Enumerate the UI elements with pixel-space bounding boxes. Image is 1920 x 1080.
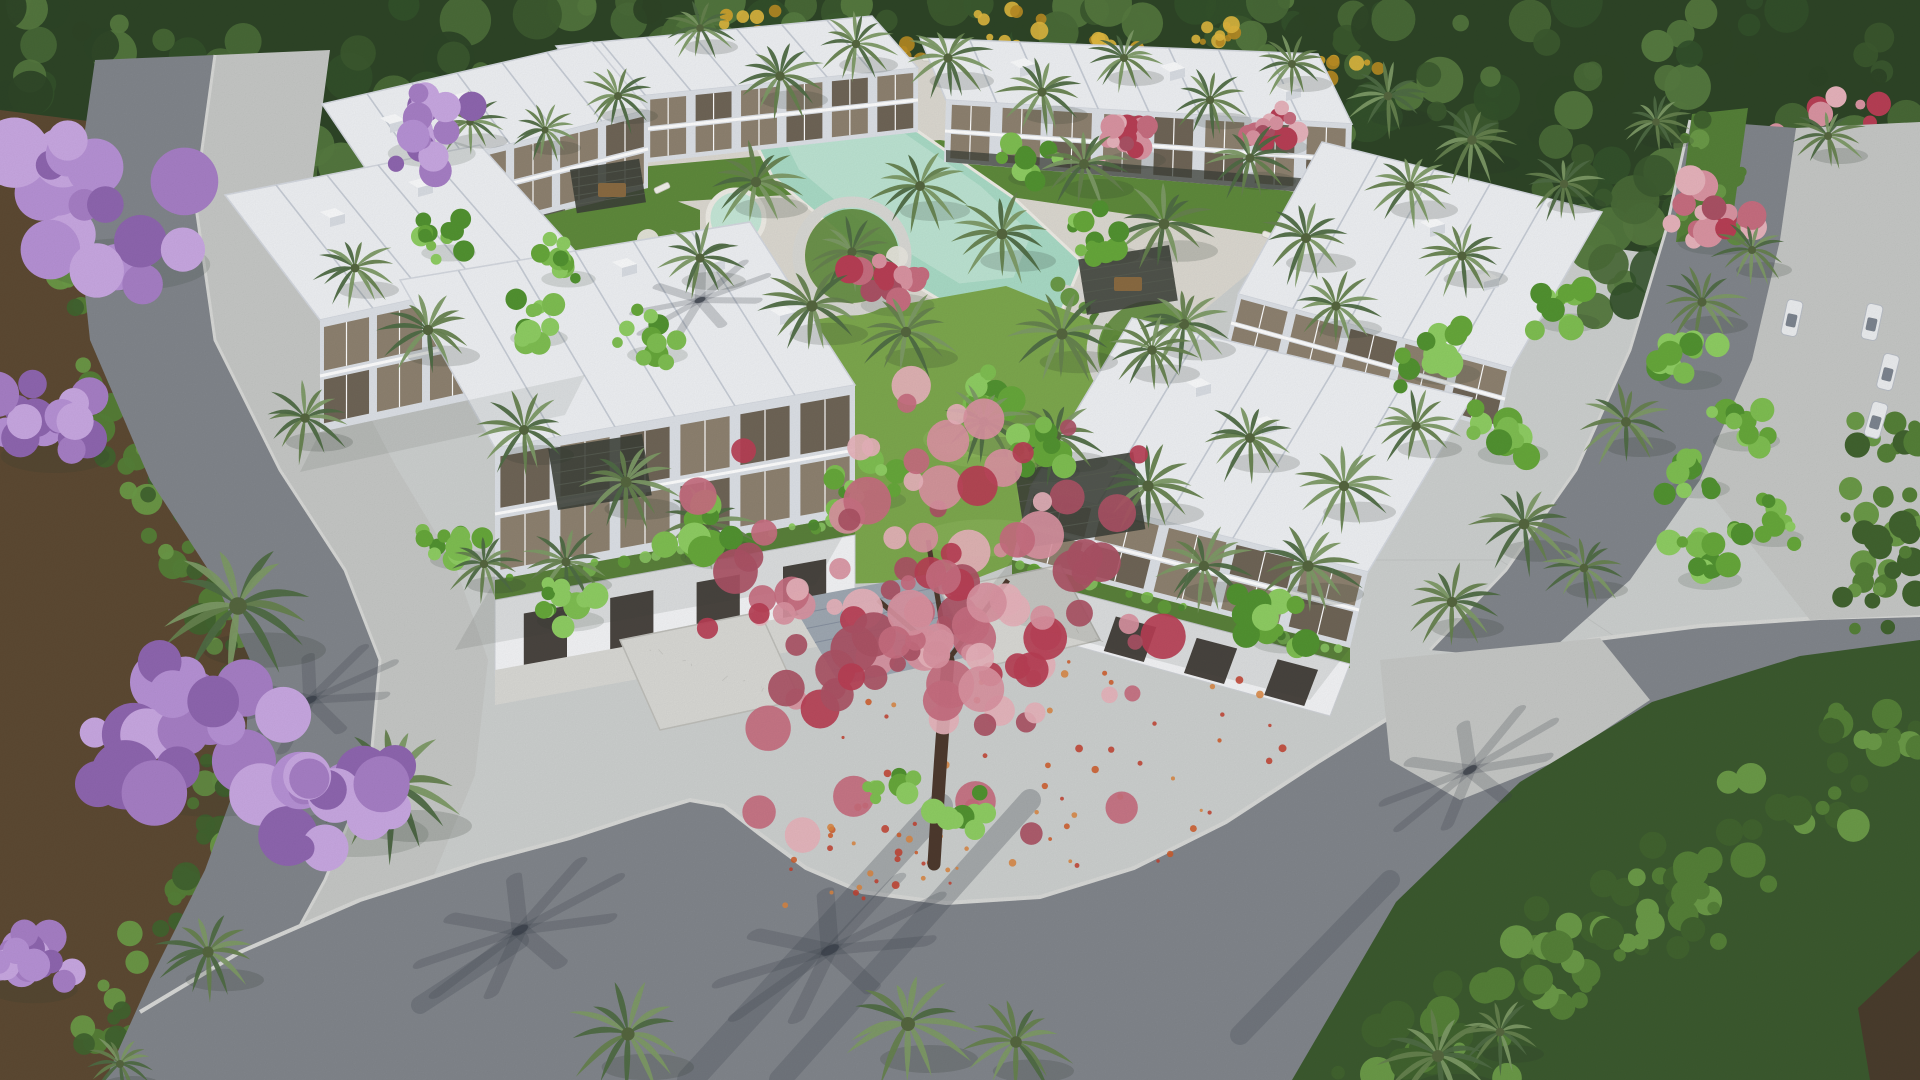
render-scene-canvas bbox=[0, 0, 1920, 1080]
aerial-architectural-rendering bbox=[0, 0, 1920, 1080]
film-grain bbox=[0, 0, 1920, 1080]
